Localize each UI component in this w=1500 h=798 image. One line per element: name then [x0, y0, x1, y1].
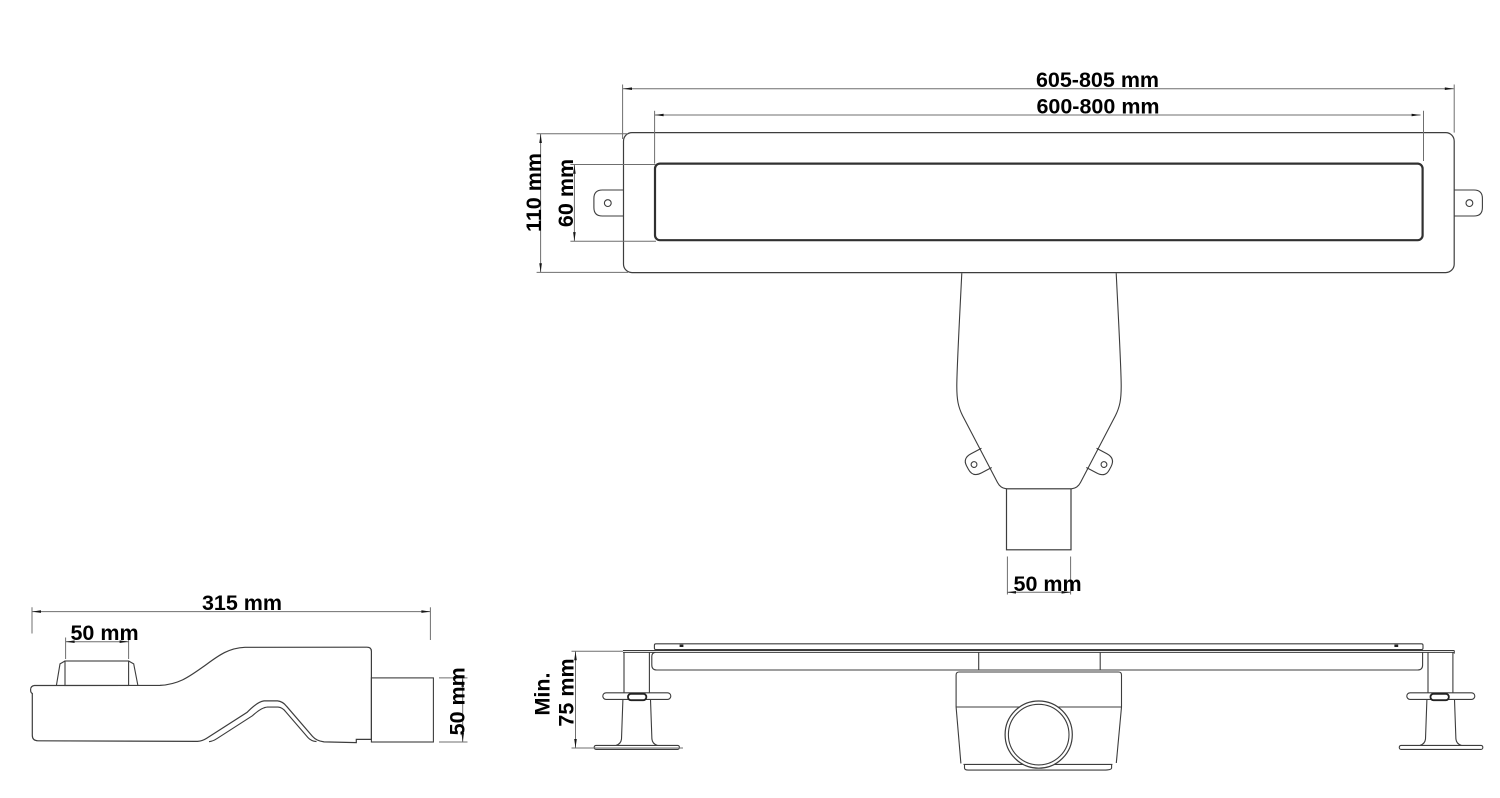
- svg-text:50 mm: 50 mm: [445, 667, 469, 735]
- svg-text:50 mm: 50 mm: [1014, 572, 1082, 596]
- svg-text:110 mm: 110 mm: [522, 153, 546, 232]
- svg-text:50 mm: 50 mm: [70, 621, 138, 645]
- svg-text:605-805 mm: 605-805 mm: [1036, 68, 1159, 92]
- svg-text:Min.: Min.: [531, 673, 555, 716]
- svg-text:600-800 mm: 600-800 mm: [1036, 95, 1159, 119]
- svg-text:60 mm: 60 mm: [554, 159, 578, 227]
- svg-text:315 mm: 315 mm: [202, 591, 282, 615]
- svg-text:75 mm: 75 mm: [555, 658, 579, 726]
